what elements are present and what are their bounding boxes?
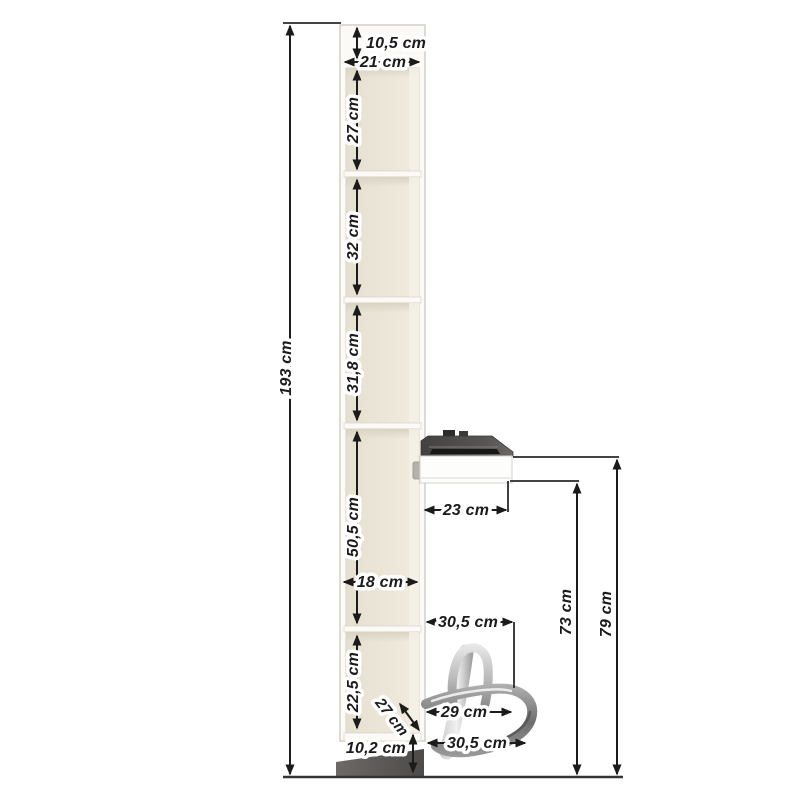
dim-label-desk-under-height: 73 cm <box>558 589 575 635</box>
dim-total-height: 193 cm <box>278 23 341 774</box>
diagram-canvas: 193 cm 10,5 cm 21 cm 27 cm 32 cm 31,8 cm… <box>0 0 800 800</box>
dim-label-shelf4: 50,5 cm <box>345 497 362 557</box>
dim-label-shelf1: 27 cm <box>345 97 362 144</box>
dim-label-footrest-top-width: 30,5 cm <box>438 614 498 631</box>
shelf-board-4 <box>344 626 421 632</box>
dim-label-desk-top-height: 79 cm <box>598 591 615 637</box>
dim-label-top-offset: 10,5 cm <box>366 35 426 52</box>
dim-label-footrest-bottom-width: 30,5 cm <box>447 735 507 752</box>
dim-label-desk-depth: 23 cm <box>442 502 489 519</box>
dim-label-total-height: 193 cm <box>278 340 295 395</box>
dim-label-inner-width: 18 cm <box>357 574 403 591</box>
desk-slot <box>430 449 500 454</box>
dim-label-shelf3: 31,8 cm <box>345 333 362 393</box>
dim-label-outer-width: 21 cm <box>359 54 406 71</box>
dim-footrest-mid-width: 29 cm <box>427 704 511 721</box>
shelf-board-1 <box>344 171 421 177</box>
dim-label-shelf2: 32 cm <box>345 214 362 260</box>
fold-out-desk <box>420 430 513 483</box>
dimension-diagram: 193 cm 10,5 cm 21 cm 27 cm 32 cm 31,8 cm… <box>0 0 800 800</box>
shelf-board-2 <box>344 297 421 303</box>
dim-label-shelf5: 22,5 cm <box>345 652 362 713</box>
dim-label-footrest-mid-width: 29 cm <box>440 704 487 721</box>
dim-desk-depth: 23 cm <box>425 481 508 519</box>
dim-label-plinth: 10,2 cm <box>346 740 406 757</box>
shelf-board-3 <box>344 423 421 429</box>
